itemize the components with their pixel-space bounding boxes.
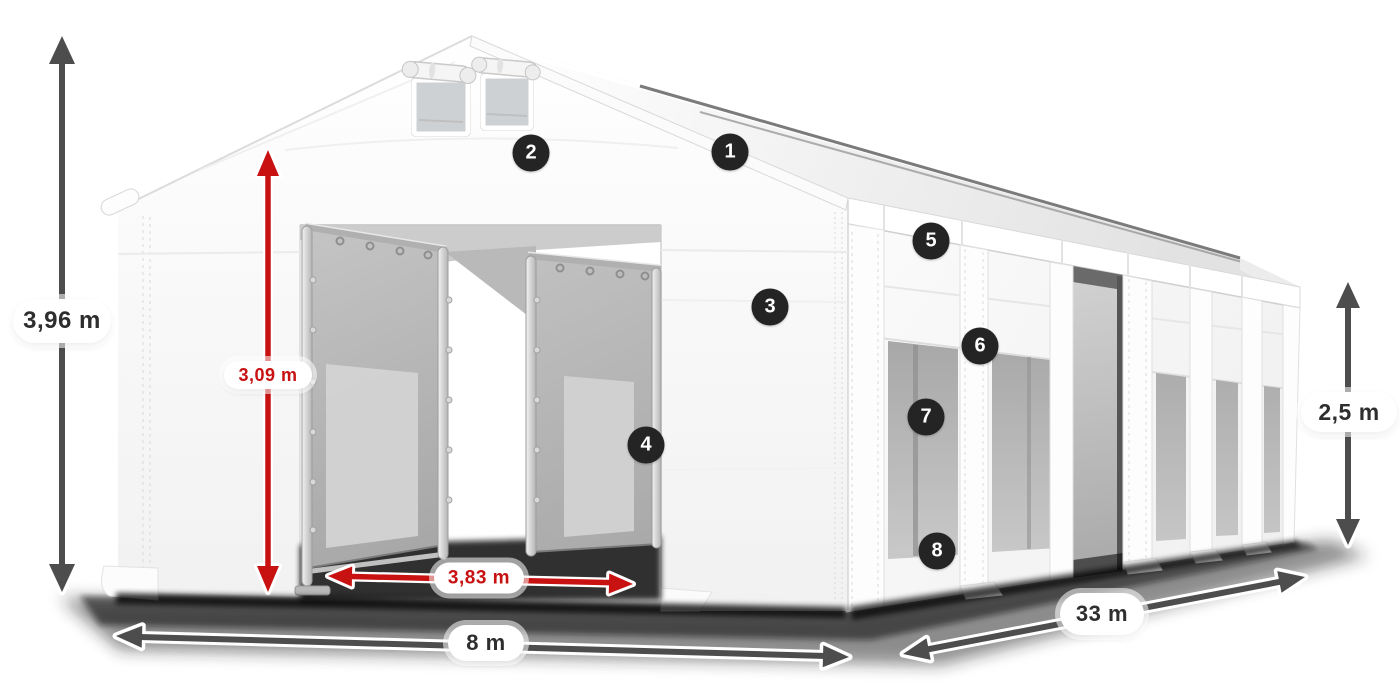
tent-illustration [0, 0, 1400, 700]
feature-badge-7[interactable]: 7 [908, 399, 945, 436]
dimension-label-length: 33 m [1060, 593, 1144, 635]
feature-badge-8[interactable]: 8 [919, 533, 956, 570]
dimension-label-entrance-height: 3,09 m [224, 361, 312, 389]
feature-badge-6[interactable]: 6 [962, 328, 999, 365]
feature-badge-1[interactable]: 1 [712, 134, 749, 171]
feature-badge-5[interactable]: 5 [913, 223, 950, 260]
feature-badge-4[interactable]: 4 [628, 427, 665, 464]
entrance-door-right [526, 253, 661, 556]
dimension-label-entrance-width: 3,83 m [434, 563, 524, 594]
dimension-label-total-height: 3,96 m [13, 299, 111, 343]
tent-diagram-stage: 3,96 m 3,09 m 3,83 m 8 m 33 m 2,5 m 1 2 … [0, 0, 1400, 700]
dimension-label-width: 8 m [448, 625, 524, 661]
entrance-door-left [295, 224, 452, 595]
feature-badge-2[interactable]: 2 [513, 135, 550, 172]
feature-badge-3[interactable]: 3 [752, 289, 789, 326]
dimension-label-side-height: 2,5 m [1301, 392, 1397, 432]
entrance-interior [295, 224, 661, 601]
